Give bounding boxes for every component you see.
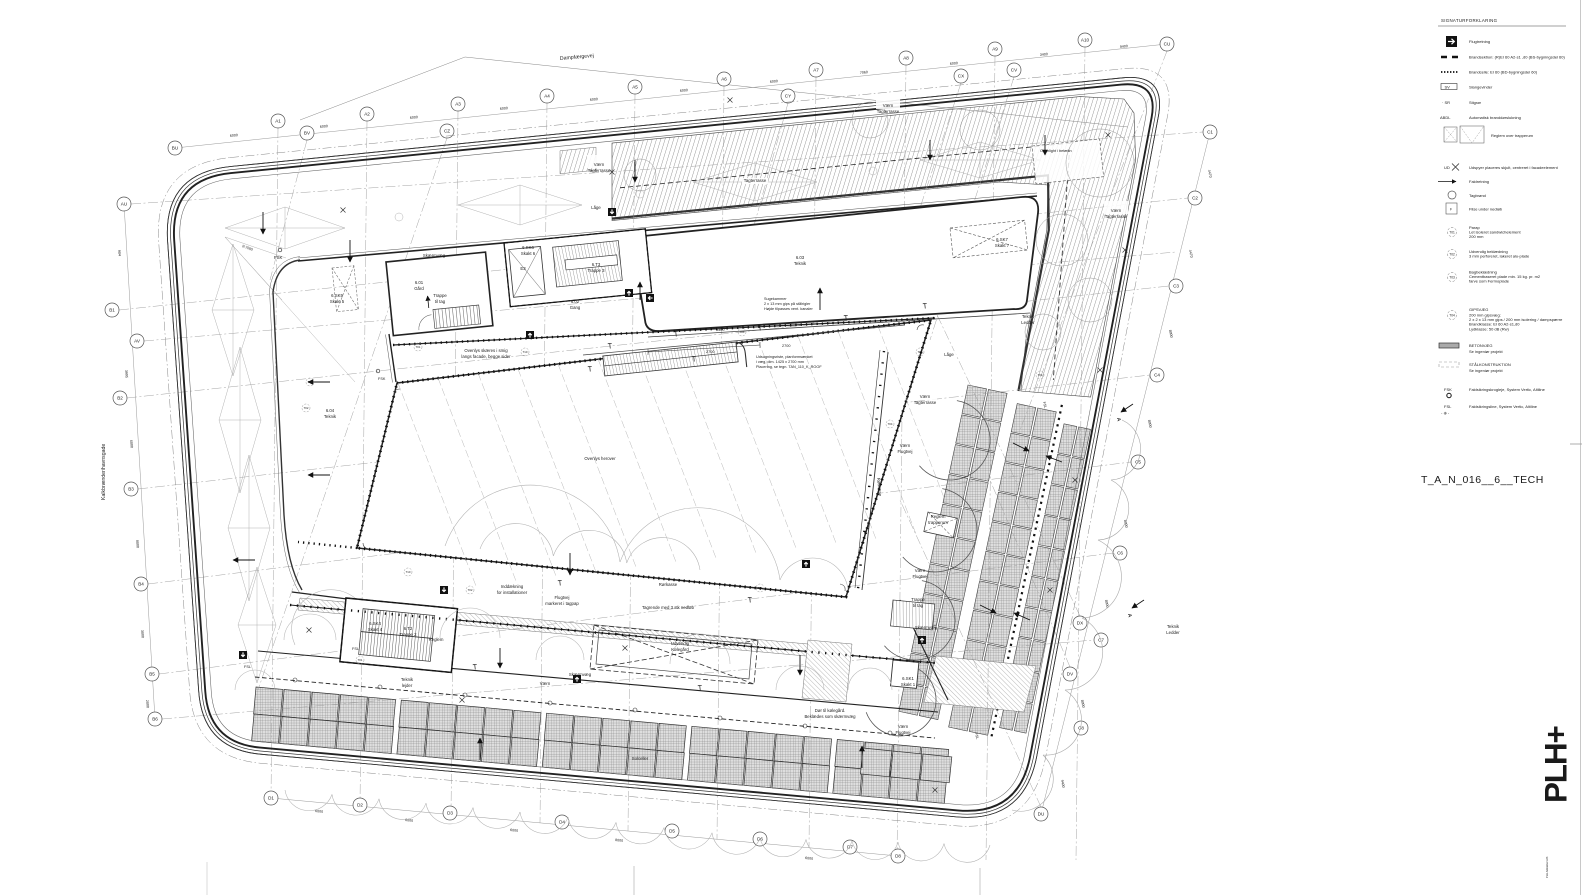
svg-text:3995: 3995 [124, 370, 129, 378]
svg-text:lejder: lejder [402, 683, 413, 688]
svg-text:6.T3: 6.T3 [592, 262, 601, 267]
svg-text:Skærmvæg: Skærmvæg [569, 672, 592, 677]
svg-text:Se ingeniør projekt: Se ingeniør projekt [1469, 349, 1503, 354]
svg-text:C1: C1 [1207, 130, 1213, 135]
svg-text:Se ingeniør projekt: Se ingeniør projekt [1469, 368, 1503, 373]
svg-text:Skakt 4: Skakt 4 [368, 627, 383, 632]
svg-text:Solceller: Solceller [632, 756, 649, 761]
svg-text:Automatisk branddørslukning: Automatisk branddørslukning [1469, 115, 1521, 120]
svg-text:Faldretning: Faldretning [1469, 179, 1489, 184]
svg-text:Skakt 7: Skakt 7 [995, 243, 1010, 248]
svg-text:CX: CX [958, 74, 964, 79]
svg-text:FSL: FSL [244, 665, 251, 669]
svg-text:Trappe: Trappe [911, 597, 925, 602]
svg-text:6.T2: 6.T2 [404, 626, 413, 631]
svg-text:B1: B1 [109, 308, 115, 313]
svg-text:BETONVÆG: BETONVÆG [1469, 343, 1493, 348]
svg-text:Ovenlys herover: Ovenlys herover [584, 456, 616, 461]
svg-text:6000: 6000 [680, 88, 688, 93]
svg-text:6.04: 6.04 [326, 408, 335, 413]
svg-text:SV: SV [1445, 84, 1451, 89]
svg-text:Reglem: Reglem [429, 637, 444, 642]
svg-text:CU: CU [1164, 42, 1171, 47]
svg-text:B2: B2 [117, 396, 123, 401]
svg-text:Slangevinder: Slangevinder [1469, 85, 1493, 90]
svg-text:Værn: Værn [898, 724, 909, 729]
svg-text:Udvendig: Udvendig [671, 641, 690, 646]
svg-text:D2: D2 [357, 803, 363, 808]
svg-text:T02: T02 [1449, 252, 1455, 256]
svg-text:T_A_N_016__6__TECH: T_A_N_016__6__TECH [1421, 474, 1544, 486]
svg-text:UD: UD [1444, 165, 1450, 170]
svg-text:9400: 9400 [1120, 44, 1128, 49]
svg-text:F: F [1450, 208, 1452, 212]
svg-text:T01: T01 [416, 345, 421, 349]
svg-text:Reglem over trapperum: Reglem over trapperum [1491, 133, 1534, 138]
svg-text:GIPSVÆG: GIPSVÆG [1469, 307, 1488, 312]
svg-text:trapperum: trapperum [928, 520, 948, 525]
svg-text:T01: T01 [358, 658, 363, 662]
svg-text:6000: 6000 [950, 61, 958, 66]
svg-text:A2: A2 [364, 112, 370, 117]
svg-text:D5: D5 [669, 829, 675, 834]
svg-text:CY: CY [785, 94, 791, 99]
svg-text:STÅLKONSTRUKTION: STÅLKONSTRUKTION [1469, 362, 1511, 367]
svg-text:B6: B6 [152, 717, 158, 722]
svg-text:A3: A3 [455, 102, 461, 107]
svg-text:C4: C4 [1154, 373, 1160, 378]
svg-text:Sugekammer: Sugekammer [764, 297, 787, 301]
svg-text:T10: T10 [308, 380, 313, 384]
svg-text:BU: BU [172, 146, 178, 151]
svg-text:6000: 6000 [410, 115, 418, 120]
svg-text:Tagterrasse: Tagterrasse [1105, 214, 1128, 219]
svg-text:Værn: Værn [594, 162, 605, 167]
svg-text:Ledder: Ledder [1021, 320, 1035, 325]
svg-text:A4: A4 [544, 94, 550, 99]
svg-text:6000: 6000 [805, 856, 813, 861]
svg-text:i væg, dim. 1425 x 2700 mm: i væg, dim. 1425 x 2700 mm [756, 360, 804, 364]
svg-text:CZ: CZ [444, 129, 450, 134]
svg-text:T03: T03 [1449, 275, 1455, 279]
svg-text:markeret i tagpap: markeret i tagpap [545, 601, 579, 606]
svg-text:C6: C6 [1117, 551, 1123, 556]
svg-text:6000: 6000 [510, 828, 518, 833]
svg-text:AV: AV [134, 339, 141, 344]
svg-text:2000: 2000 [145, 700, 150, 708]
svg-text:6000: 6000 [230, 133, 238, 138]
svg-text:Reglem: Reglem [931, 514, 946, 519]
svg-text:- ⊕ -: - ⊕ - [1441, 411, 1450, 416]
svg-text:2700: 2700 [706, 350, 714, 354]
svg-text:C2: C2 [1192, 196, 1198, 201]
svg-text:Værn: Værn [540, 681, 551, 686]
svg-text:D1: D1 [268, 796, 274, 801]
svg-text:Skærmvæg: Skærmvæg [423, 253, 446, 258]
svg-text:BV: BV [304, 131, 311, 136]
svg-text:Inddækning: Inddækning [501, 584, 524, 589]
svg-text:T10: T10 [523, 350, 528, 354]
svg-text:7060: 7060 [860, 70, 868, 75]
svg-text:T04: T04 [1449, 313, 1455, 317]
svg-text:A8: A8 [903, 56, 909, 61]
svg-text:Ovenlight i betækn: Ovenlight i betækn [1040, 149, 1072, 153]
svg-text:langs facade, begge sider: langs facade, begge sider [461, 354, 511, 359]
svg-text:Værn: Værn [883, 103, 894, 108]
svg-text:6000: 6000 [770, 79, 778, 84]
svg-text:A6: A6 [721, 77, 727, 82]
svg-text:A5: A5 [632, 85, 638, 90]
svg-text:Placering, se tegn. TAN_110_K_: Placering, se tegn. TAN_110_K_ROOF [756, 365, 822, 369]
svg-text:Værn: Værn [920, 394, 931, 399]
svg-text:T04: T04 [918, 350, 923, 354]
svg-text:3400: 3400 [1040, 52, 1048, 57]
svg-text:til tag: til tag [435, 299, 446, 304]
svg-text:PLH Arkitekter A/S: PLH Arkitekter A/S [1545, 856, 1549, 878]
svg-text:FSK: FSK [274, 255, 282, 260]
svg-text:D8: D8 [895, 854, 901, 859]
svg-text:8000: 8000 [135, 540, 140, 548]
svg-text:PLH+: PLH+ [1538, 726, 1574, 803]
svg-text:T04: T04 [1038, 373, 1043, 377]
svg-text:CV: CV [1011, 68, 1018, 73]
svg-text:A10: A10 [1081, 38, 1090, 43]
svg-text:Teknik: Teknik [1167, 624, 1180, 629]
svg-text:Dør til kølegård.: Dør til kølegård. [815, 708, 846, 713]
svg-text:· SR: · SR [1442, 100, 1450, 105]
svg-text:Låge: Låge [944, 352, 954, 357]
svg-text:Værn: Værn [1111, 208, 1122, 213]
svg-text:B4: B4 [138, 582, 144, 587]
svg-text:Tagterrasse: Tagterrasse [588, 168, 611, 173]
svg-text:Gang: Gang [570, 305, 581, 310]
svg-text:6.SK7: 6.SK7 [996, 237, 1008, 242]
svg-text:Skakt 1: Skakt 1 [901, 682, 916, 687]
svg-text:Tagterrasse: Tagterrasse [877, 109, 900, 114]
svg-text:C3: C3 [1173, 284, 1179, 289]
svg-text:T02: T02 [304, 406, 309, 410]
svg-text:T04: T04 [758, 586, 763, 590]
svg-text:Udspyer placeres skjult, centr: Udspyer placeres skjult, centreret i fac… [1469, 165, 1559, 170]
svg-text:FSK: FSK [1444, 387, 1452, 392]
svg-text:Teknik: Teknik [324, 414, 337, 419]
svg-text:Tagbrønd: Tagbrønd [1469, 193, 1486, 198]
svg-text:Skærmvæg: Skærmvæg [915, 625, 938, 630]
svg-text:FSL: FSL [352, 647, 359, 651]
svg-text:3000: 3000 [140, 630, 145, 638]
svg-text:6000: 6000 [500, 106, 508, 111]
svg-text:6.01: 6.01 [415, 280, 424, 285]
svg-text:til tag: til tag [913, 603, 924, 608]
svg-text:Teknik: Teknik [794, 261, 807, 266]
svg-text:DU: DU [1038, 812, 1045, 817]
svg-text:B3: B3 [128, 487, 134, 492]
svg-text:Faldsikringsline, System Verti: Faldsikringsline, System Vertic, Altilin… [1469, 404, 1538, 409]
svg-text:Låge: Låge [591, 205, 601, 210]
svg-text:6.SK4: 6.SK4 [369, 621, 381, 626]
svg-text:2700: 2700 [782, 344, 790, 348]
svg-text:Rørkasse: Rørkasse [659, 582, 678, 587]
svg-text:Beklædes som skærmvæg: Beklædes som skærmvæg [804, 714, 856, 719]
svg-text:D3: D3 [447, 811, 453, 816]
svg-text:Lydklasse: 50 dB (Rw): Lydklasse: 50 dB (Rw) [1469, 326, 1510, 331]
svg-text:904: 904 [117, 250, 122, 256]
svg-text:DV: DV [1067, 672, 1074, 677]
svg-text:Flugtvej: Flugtvej [895, 730, 910, 735]
svg-text:T10: T10 [406, 570, 411, 574]
svg-text:2 x 13 mm gips på stålrigler: 2 x 13 mm gips på stålrigler [764, 302, 811, 306]
svg-text:Udsugningsriste, planformsænke: Udsugningsriste, planformsænket [756, 355, 814, 359]
svg-text:Teknik: Teknik [401, 677, 414, 682]
svg-text:8000: 8000 [615, 838, 623, 843]
svg-text:A7: A7 [813, 68, 819, 73]
svg-text:T04: T04 [740, 330, 745, 334]
svg-text:T04: T04 [888, 422, 893, 426]
svg-text:3 mm perforeret, lakeret alu-p: 3 mm perforeret, lakeret alu-plade [1469, 254, 1530, 259]
svg-text:Trappe: Trappe [433, 293, 447, 298]
svg-text:E3: E3 [520, 266, 526, 271]
svg-text:6.02: 6.02 [571, 299, 580, 304]
svg-text:Teknik: Teknik [1022, 314, 1035, 319]
svg-text:FSK: FSK [378, 377, 386, 381]
svg-text:Skakt 5: Skakt 5 [330, 299, 345, 304]
svg-text:Flugtvej: Flugtvej [897, 449, 912, 454]
svg-text:T01: T01 [1449, 230, 1455, 234]
svg-text:C8: C8 [1078, 726, 1084, 731]
svg-text:Kalkbrænderihavnsgade: Kalkbrænderihavnsgade [101, 444, 107, 500]
svg-text:Trappe 2: Trappe 2 [399, 632, 417, 637]
svg-text:AU: AU [121, 202, 127, 207]
svg-text:Tagterrasse: Tagterrasse [744, 178, 767, 183]
svg-text:B5: B5 [149, 672, 155, 677]
svg-text:Flugtretning: Flugtretning [1469, 39, 1490, 44]
svg-text:Trappe 3: Trappe 3 [587, 268, 605, 273]
svg-text:6.SK6: 6.SK6 [522, 245, 534, 250]
svg-text:200 mm: 200 mm [1469, 234, 1484, 239]
svg-text:6.SK5: 6.SK5 [331, 293, 343, 298]
svg-text:Brandcelle: EI 60 (BD-bygnings: Brandcelle: EI 60 (BD-bygningsdel 60) [1469, 70, 1538, 75]
svg-text:Skakt 6: Skakt 6 [521, 251, 536, 256]
svg-text:ABDL: ABDL [1440, 115, 1451, 120]
svg-text:for installationer: for installationer [497, 590, 528, 595]
svg-text:8300: 8300 [716, 328, 724, 332]
svg-text:Ovenlys skæres i smig: Ovenlys skæres i smig [464, 348, 508, 353]
svg-text:Flugtvej: Flugtvej [554, 595, 569, 600]
svg-text:Stigrør: Stigrør [1469, 100, 1482, 105]
svg-text:Højde tilpasses vent. kanaler: Højde tilpasses vent. kanaler [764, 307, 813, 311]
svg-text:Flugtvej: Flugtvej [912, 574, 927, 579]
svg-text:Kølegård: Kølegård [671, 647, 689, 652]
svg-text:Gård: Gård [414, 286, 424, 291]
svg-text:Tagterrasse: Tagterrasse [914, 400, 937, 405]
svg-text:A9: A9 [992, 47, 998, 52]
svg-text:Ledder: Ledder [1166, 630, 1180, 635]
svg-text:A1: A1 [275, 119, 281, 124]
svg-text:Brandsektion: (R)EI 60 A2-s1 ,: Brandsektion: (R)EI 60 A2-s1 ,d0 (BS-byg… [1469, 55, 1565, 60]
svg-text:T02: T02 [468, 588, 473, 592]
svg-text:FSL: FSL [1444, 404, 1452, 409]
svg-text:farve som Fermoplade: farve som Fermoplade [1469, 279, 1510, 284]
svg-text:Værn: Værn [900, 443, 911, 448]
svg-text:6.03: 6.03 [796, 255, 805, 260]
svg-text:Faldsikringskrogleje, System V: Faldsikringskrogleje, System Vertic, Alt… [1469, 387, 1546, 392]
svg-text:6.SK1: 6.SK1 [902, 676, 914, 681]
svg-text:Værn: Værn [915, 568, 926, 573]
svg-text:SIGNATURFORKLARING: SIGNATURFORKLARING [1441, 18, 1498, 23]
svg-text:6000: 6000 [129, 440, 134, 448]
svg-text:Flise under nedløb: Flise under nedløb [1469, 207, 1503, 212]
svg-text:6000: 6000 [320, 124, 328, 129]
svg-text:Tagrende med 3 stk nedløb: Tagrende med 3 stk nedløb [642, 605, 695, 610]
svg-text:DX: DX [1077, 621, 1083, 626]
svg-text:6000: 6000 [590, 97, 598, 102]
